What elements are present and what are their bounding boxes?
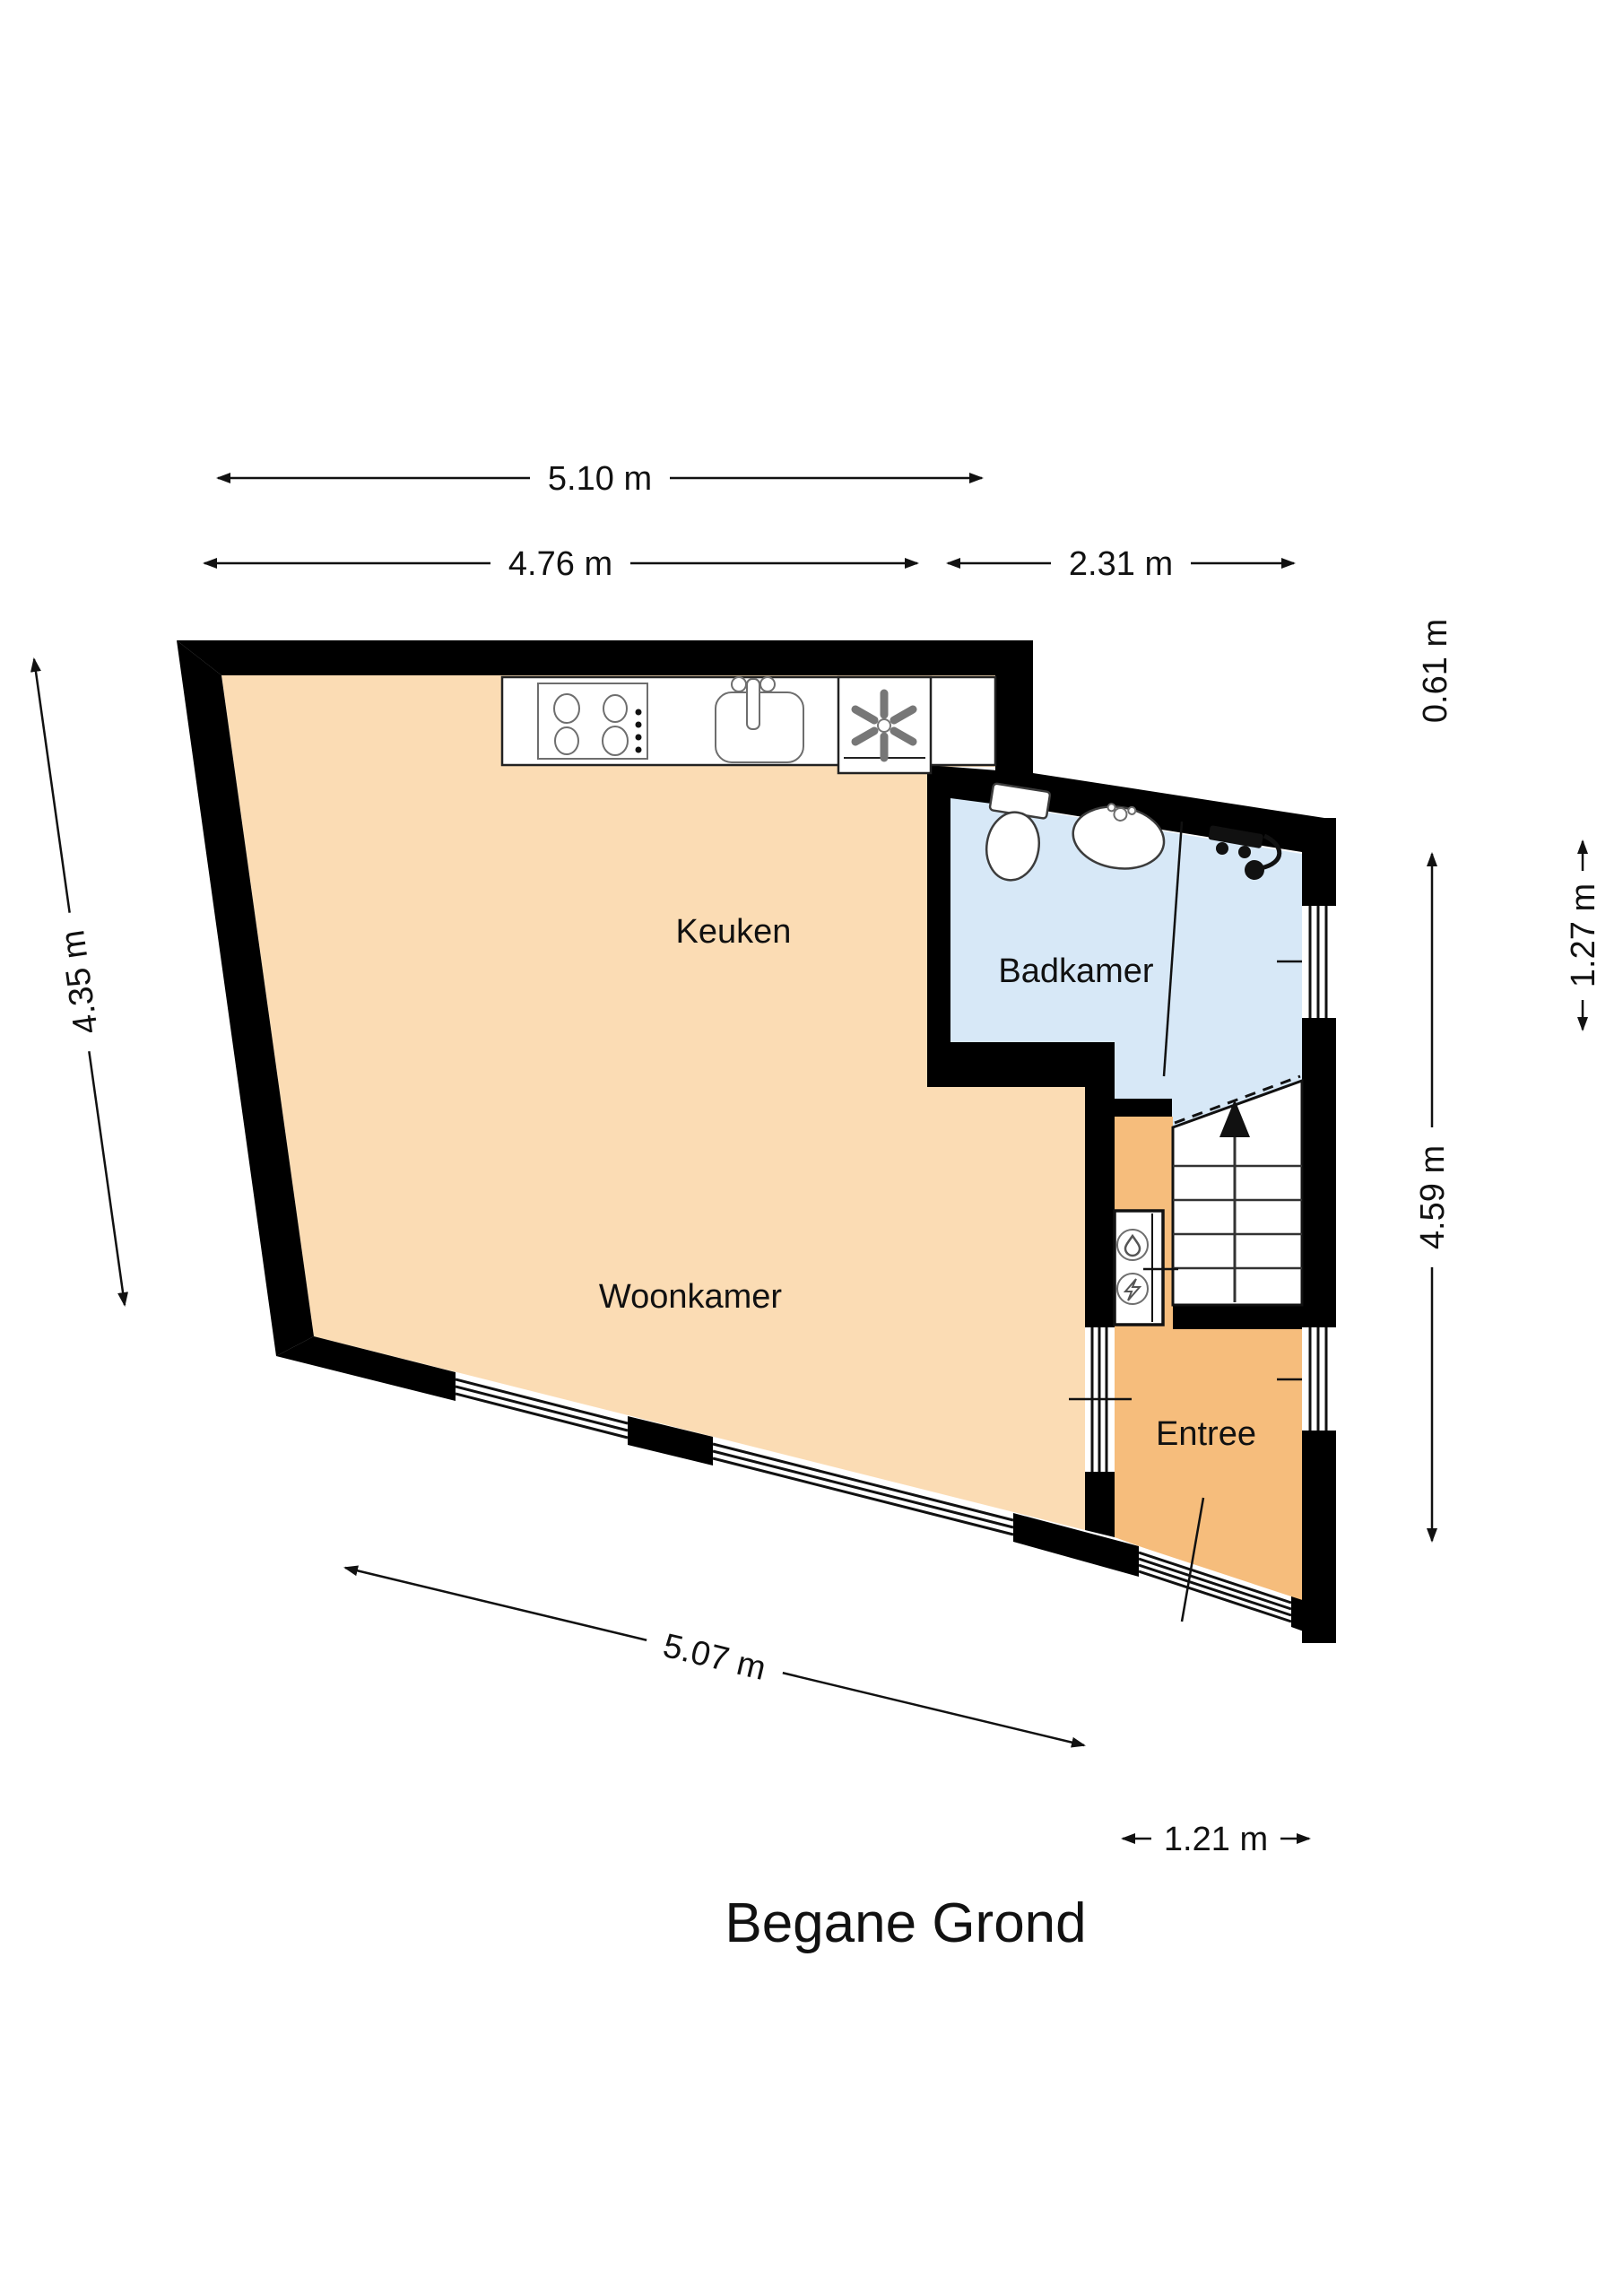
wall-divider-upper bbox=[1085, 1087, 1115, 1327]
wall-bathroom-threshold bbox=[1115, 1099, 1172, 1117]
dim-top-right-bathroom: 2.31 m bbox=[948, 542, 1294, 585]
dim-label-top-right: 2.31 m bbox=[1069, 545, 1173, 583]
dim-bottom-wall: 5.07 m bbox=[345, 1568, 1084, 1745]
wall-bathroom-left bbox=[927, 798, 950, 1042]
dim-label-top-total: 5.10 m bbox=[548, 460, 652, 498]
stove-icon bbox=[538, 683, 647, 759]
floor-plan-canvas: 5.10 m 4.76 m 2.31 m 4.35 m 0.61 m 4.59 … bbox=[0, 0, 1623, 2296]
room-label-entree: Entree bbox=[1156, 1415, 1256, 1453]
wall-bathroom-bottom bbox=[927, 1042, 1115, 1087]
dim-left-wall: 4.35 m bbox=[34, 659, 125, 1305]
dim-right-bathroom: 1.27 m bbox=[1561, 841, 1604, 1030]
dim-label-right-total: 4.59 m bbox=[1414, 1145, 1452, 1249]
dim-label-left: 4.35 m bbox=[54, 927, 106, 1036]
room-label-badkamer: Badkamer bbox=[998, 952, 1154, 990]
floor-plan-page: 5.10 m 4.76 m 2.31 m 4.35 m 0.61 m 4.59 … bbox=[0, 0, 1623, 2296]
room-label-woonkamer: Woonkamer bbox=[599, 1278, 783, 1316]
dim-top-left-interior: 4.76 m bbox=[204, 542, 917, 585]
ventilation-icon bbox=[838, 677, 931, 773]
kitchen-counter bbox=[502, 677, 995, 773]
dim-right-step: 0.61 m bbox=[1417, 619, 1454, 723]
dim-front-door: 1.21 m bbox=[1123, 1817, 1309, 1860]
wall-divider-lower bbox=[1085, 1472, 1115, 1537]
dim-label-front-door: 1.21 m bbox=[1164, 1821, 1268, 1858]
dim-top-total: 5.10 m bbox=[218, 457, 982, 500]
dim-right-total: 4.59 m bbox=[1410, 854, 1454, 1541]
room-label-keuken: Keuken bbox=[676, 913, 792, 951]
wall-stairs-bottom bbox=[1173, 1305, 1302, 1329]
water-meter-icon bbox=[1117, 1230, 1148, 1260]
dim-label-right-step: 0.61 m bbox=[1417, 619, 1454, 723]
dim-label-top-left: 4.76 m bbox=[508, 545, 612, 583]
electricity-meter-icon bbox=[1117, 1274, 1148, 1304]
plan-title: Begane Grond bbox=[725, 1892, 1086, 1954]
dim-label-right-bathroom: 1.27 m bbox=[1565, 883, 1602, 987]
